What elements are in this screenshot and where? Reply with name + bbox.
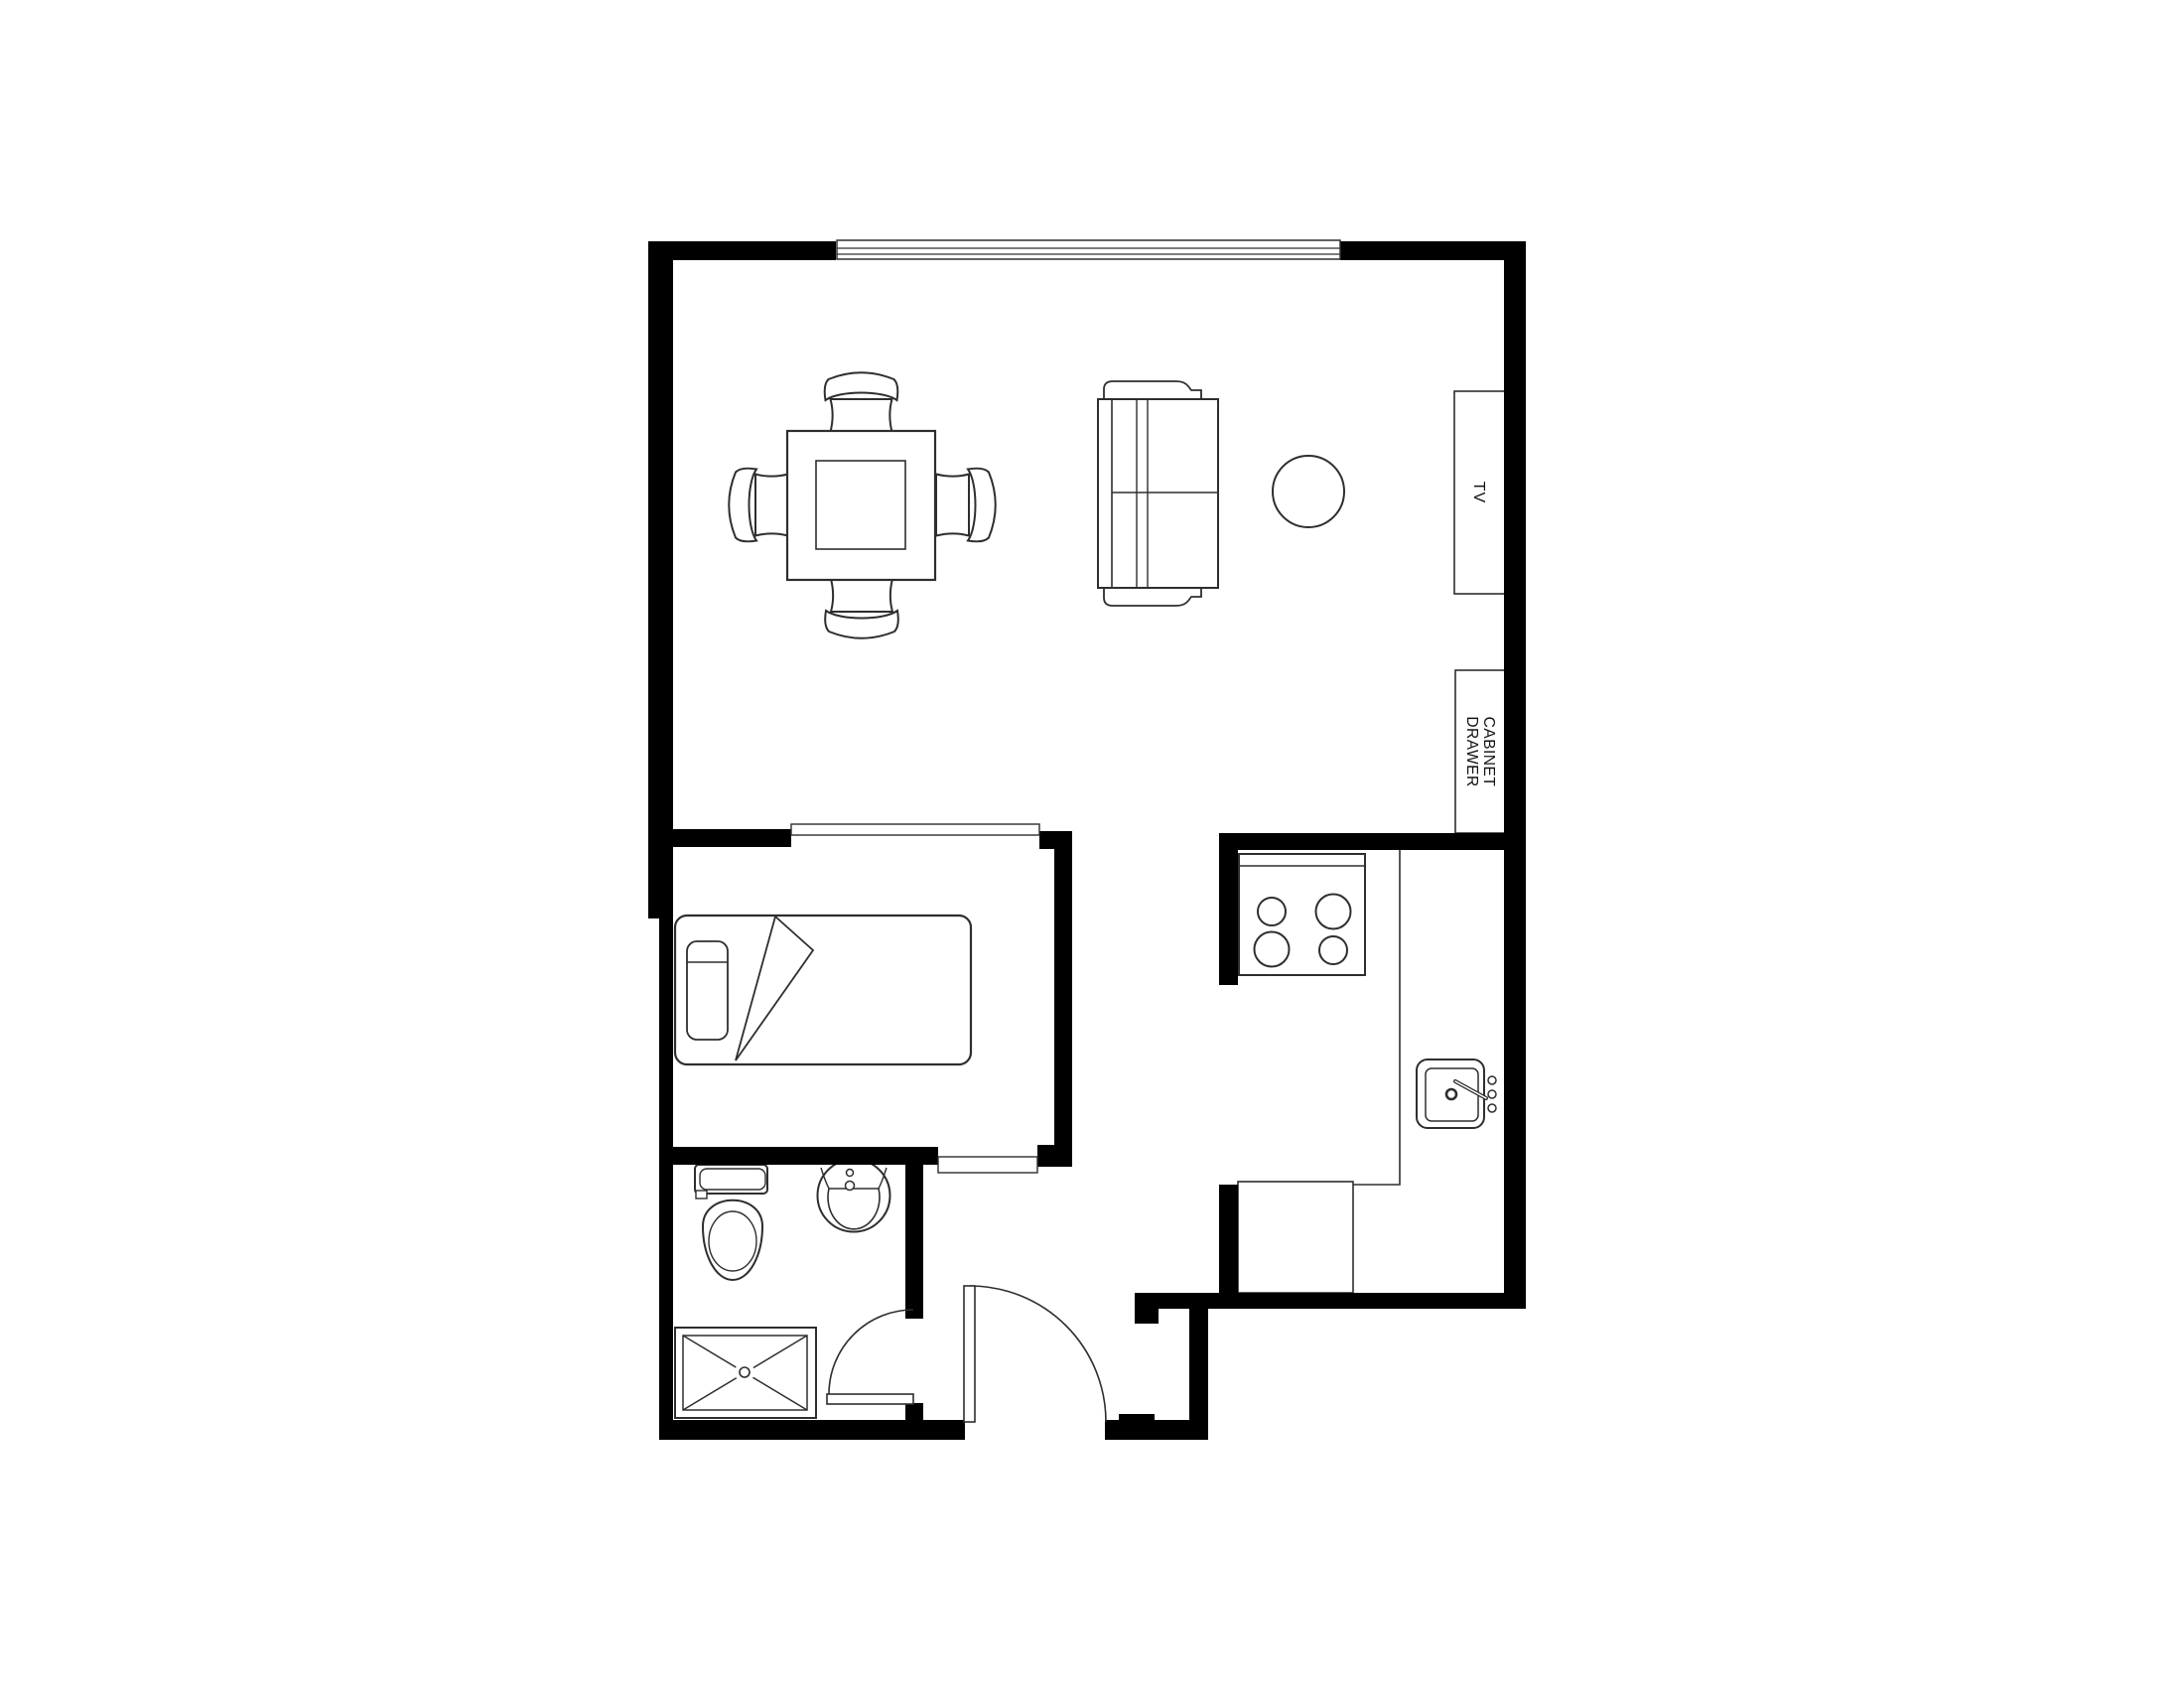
- sink-knob-3: [1488, 1104, 1496, 1112]
- entry-door-leaf: [964, 1286, 975, 1422]
- stove: [1239, 854, 1365, 975]
- kitchen-sink: [1417, 1059, 1496, 1128]
- wall-bedroom-right: [1054, 849, 1072, 1165]
- wall-kitchen-bottom-stub: [1135, 1309, 1159, 1324]
- wall-top-right: [1340, 241, 1526, 260]
- wall-kitchen-bottom: [1135, 1293, 1526, 1309]
- cased-opening-bedroom-bottom: [938, 1157, 1037, 1173]
- sink-knob-1: [1488, 1076, 1496, 1084]
- bathroom-area: [675, 1160, 890, 1419]
- dining-chair-north: [825, 372, 898, 432]
- basin-faucet-hole-2: [846, 1182, 855, 1191]
- burner-bottom-left: [1255, 932, 1290, 967]
- bathroom-door: [827, 1310, 913, 1404]
- living-dining-area: TV CABINET DRAWER: [729, 372, 1505, 833]
- dining-chair-east: [936, 469, 996, 542]
- wall-bathroom-top: [659, 1147, 938, 1165]
- burner-top-right: [1316, 895, 1351, 929]
- walls: [648, 241, 1526, 1440]
- wall-bedroom-bottom-block: [1037, 1145, 1072, 1167]
- dining-chair-west: [729, 469, 788, 542]
- tv-console: TV: [1454, 391, 1505, 594]
- doors: [827, 1286, 1106, 1422]
- window: [837, 240, 1340, 259]
- window-frame: [837, 240, 1340, 259]
- wall-bedroom-top-left: [648, 829, 791, 847]
- dining-chair-south: [825, 579, 898, 638]
- burner-bottom-right: [1319, 936, 1347, 964]
- toilet-bowl-inner: [709, 1211, 756, 1271]
- wall-bedroom-top-right-block: [1039, 831, 1072, 849]
- round-side-table: [1273, 456, 1344, 527]
- sink-knob-2: [1488, 1090, 1496, 1098]
- toilet-tank-lid: [700, 1169, 765, 1190]
- wall-bathroom-right-stub: [905, 1403, 923, 1422]
- wall-bathroom-right: [905, 1165, 923, 1319]
- basin-faucet-hole-1: [847, 1170, 854, 1177]
- shower: [675, 1328, 816, 1418]
- wall-left-upper: [648, 241, 673, 918]
- faucet-base: [1446, 1089, 1456, 1099]
- dining-table-inset: [816, 461, 905, 549]
- wall-kitchen-left-upper: [1219, 833, 1238, 985]
- kitchen-area: [1238, 850, 1496, 1293]
- tv-label: TV: [1470, 482, 1487, 503]
- wall-top-left: [648, 241, 836, 260]
- wall-right: [1504, 241, 1526, 1309]
- sofa: [1098, 381, 1218, 606]
- sofa-armrest-bottom: [1104, 588, 1201, 606]
- toilet-flush-handle: [696, 1191, 707, 1199]
- sofa-body: [1098, 399, 1218, 588]
- bathroom-door-swing-arc: [829, 1310, 913, 1394]
- shower-drain: [740, 1367, 750, 1377]
- wall-entry-notch: [1119, 1414, 1155, 1422]
- wall-kitchen-left-lower: [1219, 1185, 1238, 1293]
- cased-opening-bedroom-top: [791, 824, 1039, 835]
- sofa-armrest-top: [1104, 381, 1201, 399]
- bathroom-door-leaf: [827, 1394, 913, 1404]
- cabinet-drawer: CABINET DRAWER: [1455, 670, 1505, 833]
- wall-left-lower: [659, 918, 673, 1440]
- floor-plan-canvas: TV CABINET DRAWER: [0, 0, 2184, 1688]
- cabinet-label-line2: DRAWER: [1463, 716, 1480, 786]
- bedroom-area: [675, 916, 971, 1064]
- wall-entry-right: [1189, 1304, 1208, 1440]
- pillow: [687, 941, 728, 1040]
- kitchen-cabinet: [1238, 1182, 1353, 1293]
- wall-bottom-bathroom: [659, 1420, 965, 1440]
- entry-door: [964, 1286, 1106, 1422]
- toilet: [695, 1165, 767, 1280]
- floor-plan-page: TV CABINET DRAWER: [0, 0, 2184, 1688]
- entry-door-swing-arc: [970, 1286, 1106, 1422]
- wall-kitchen-top: [1219, 833, 1526, 850]
- cabinet-label-line1: CABINET: [1480, 717, 1497, 787]
- burner-top-left: [1258, 898, 1286, 925]
- bathroom-sink: [818, 1160, 890, 1232]
